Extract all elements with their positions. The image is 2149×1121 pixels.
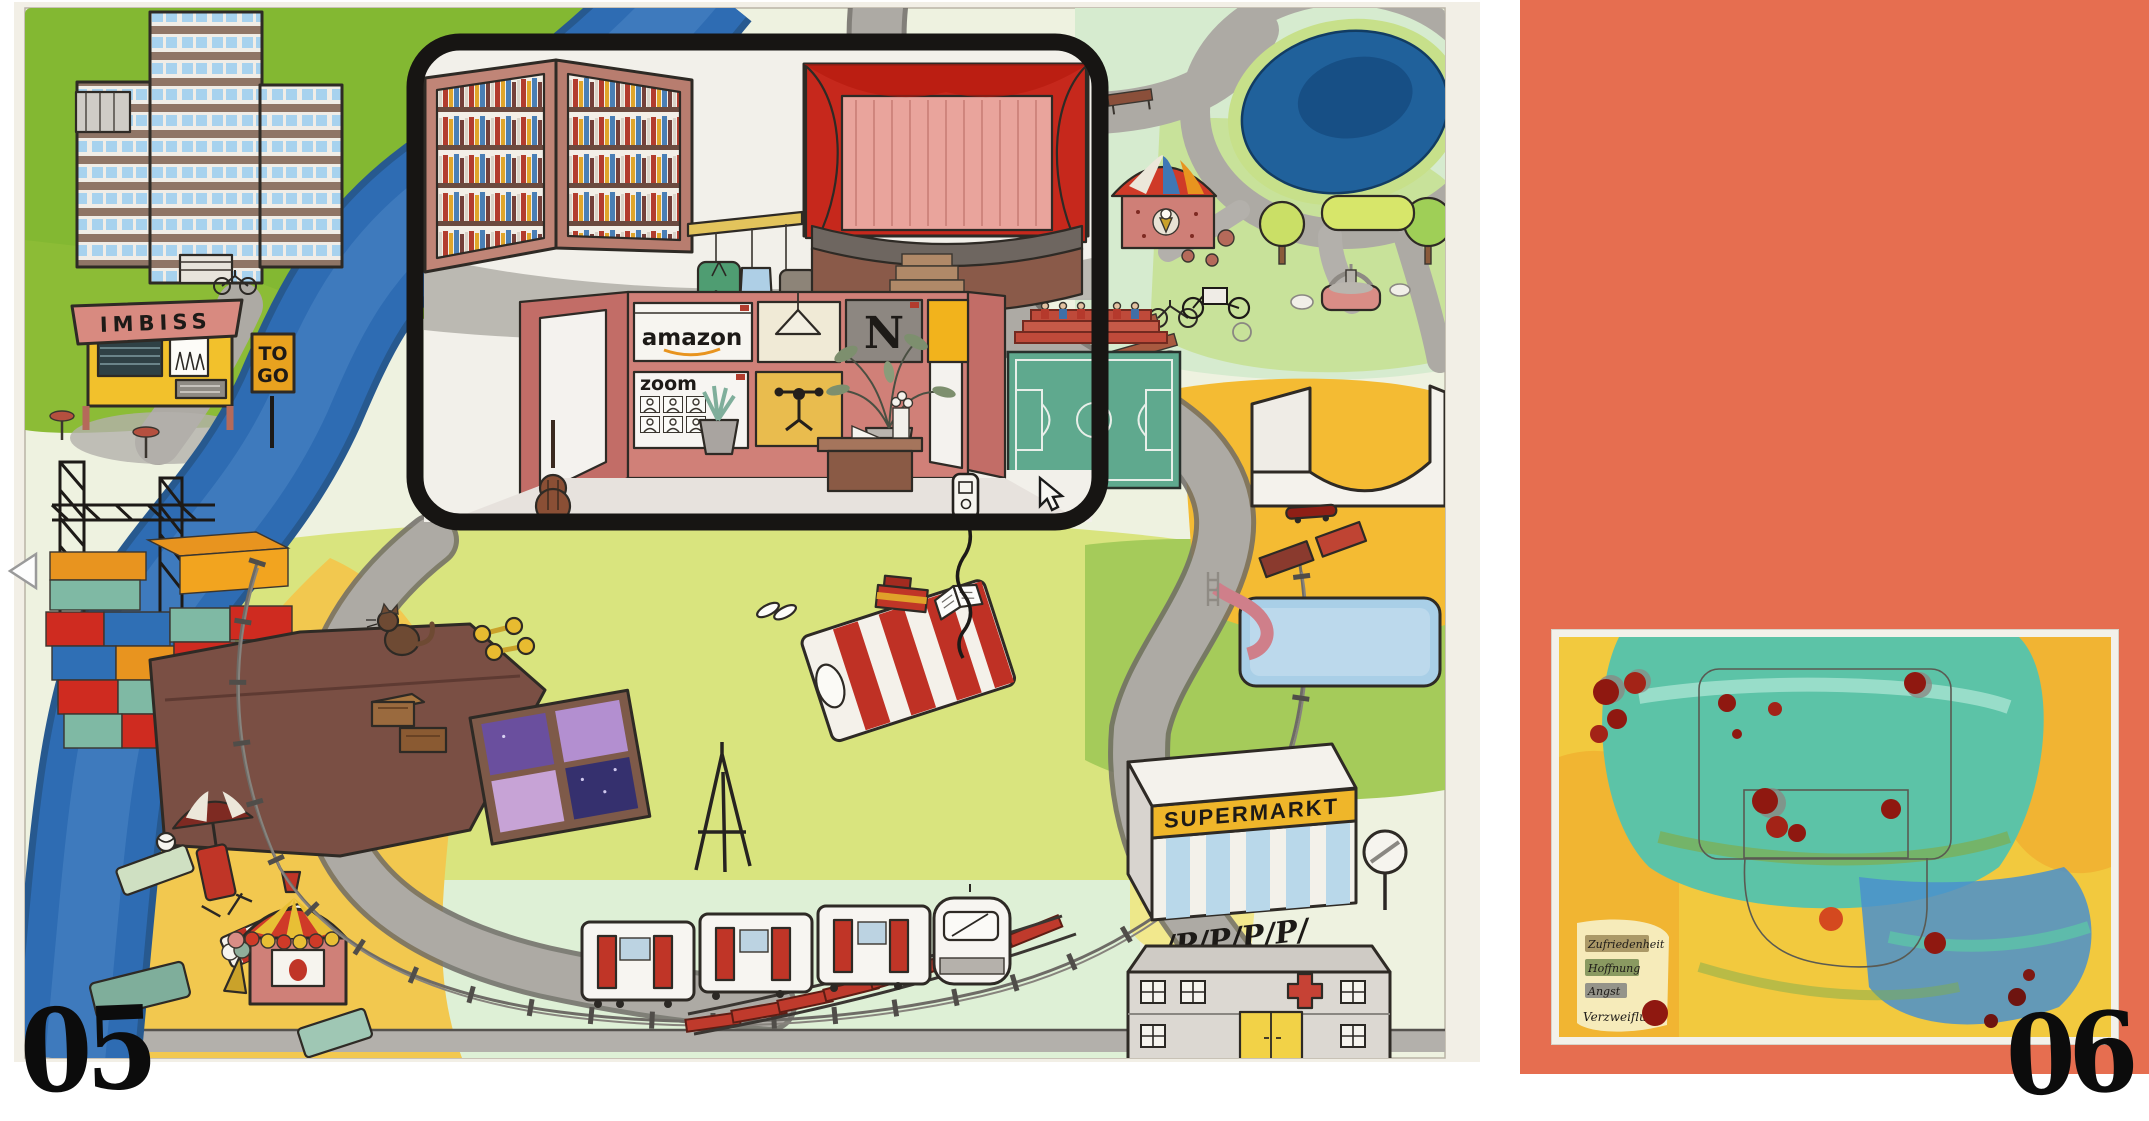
tram-car (582, 922, 694, 1008)
library-bookshelves (425, 60, 692, 272)
stine-window (928, 300, 968, 362)
page-number-right: 06 (2004, 997, 2133, 1112)
legend-label-angst: Angst (1587, 985, 1621, 998)
living-room: amazon N (445, 292, 1083, 523)
fitness-video-window (756, 372, 842, 446)
tram-car (700, 914, 812, 1000)
page-number-left: 05 (18, 990, 152, 1109)
emotion-map-painting: Zufriedenheit Hoffnung Angst Verzweiflun… (1559, 637, 2111, 1037)
togo-text-line1: TO (258, 343, 287, 365)
previous-page-button[interactable] (4, 550, 40, 592)
netflix-window: N (846, 300, 922, 362)
previous-arrow-icon (10, 554, 36, 588)
netflix-n-logo: N (864, 308, 904, 359)
cafe-table (1218, 230, 1234, 246)
theater-stage (804, 64, 1088, 312)
tram-car (818, 906, 930, 992)
amazon-logo-text: amazon (642, 325, 743, 351)
zoom-logo-text: zoom (640, 373, 697, 395)
imbiss-sign-text: IMBISS (99, 309, 212, 337)
emotion-legend: Zufriedenheit Hoffnung Angst Verzweiflun… (1577, 919, 1669, 1031)
hedge (1322, 196, 1414, 230)
stone (1291, 295, 1313, 309)
hospital (1128, 946, 1390, 1062)
amazon-window: amazon (634, 303, 752, 361)
abstract-artwork-page: Zufriedenheit Hoffnung Angst Verzweiflun… (1552, 630, 2118, 1044)
left-artwork-page: IMBISS TO GO (0, 0, 1480, 1064)
legend-label-hoffnung: Hoffnung (1587, 962, 1640, 975)
right-panel: Zufriedenheit Hoffnung Angst Verzweiflun… (1520, 0, 2149, 1074)
town-map-painting: IMBISS TO GO (0, 0, 1480, 1064)
open-door (540, 310, 606, 494)
stone (1390, 284, 1410, 296)
lamp-wall-panel (758, 292, 840, 362)
tram-cab (934, 884, 1010, 984)
legend-label-zufriedenheit: Zufriedenheit (1587, 938, 1665, 951)
togo-text-line2: GO (257, 365, 289, 387)
bus-shelter (76, 92, 130, 132)
purple-window-painting (470, 690, 650, 844)
vase (893, 408, 909, 438)
legend-blob-verzweiflung (1642, 1000, 1668, 1026)
